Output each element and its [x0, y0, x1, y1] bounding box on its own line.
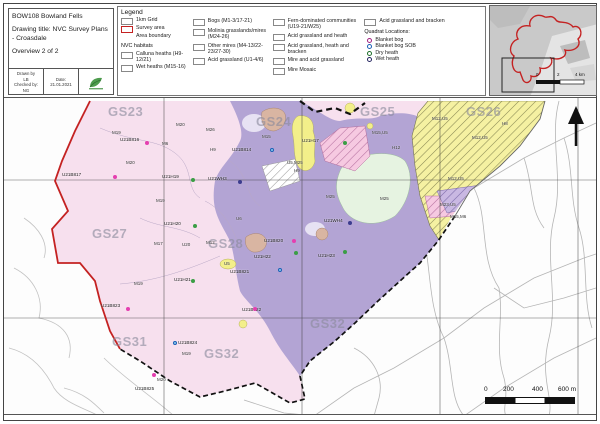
drawing-title: Drawing title: NVC Survey Plans - Croasd… [12, 26, 110, 43]
legend-item: Mire and acid grassland [273, 57, 365, 65]
legend-swatch [193, 29, 205, 36]
legend-swatch [364, 19, 376, 26]
nvc-code-label: U5 [224, 261, 230, 266]
quadrat-label: U21B820 [264, 238, 283, 243]
quadrat-marker: U21B825 [135, 377, 154, 395]
acid-grassland-heath-region [412, 101, 550, 246]
project-title: BOW108 Bowland Fells [12, 13, 110, 21]
grid-square-label: GS32 [204, 346, 239, 361]
legend-swatch [273, 19, 285, 26]
scalebar-label: 200 [503, 386, 514, 393]
nvc-code-label: M17 [154, 241, 163, 246]
nvc-code-label: M25 [326, 194, 335, 199]
quadrat-label: U21H19 [162, 174, 179, 179]
quadrat-dot-icon [238, 180, 242, 184]
nvc-code-label: M15,U5 [372, 130, 388, 135]
legend-swatch [193, 44, 205, 51]
north-arrow-icon [568, 106, 584, 146]
quadrat-marker: U21B816 [120, 128, 139, 146]
quadrat-label: U21B816 [120, 137, 139, 142]
quadrat-dot-icon [193, 224, 197, 228]
nvc-code-label: H12 [392, 145, 400, 150]
locator-map-graphic [490, 6, 597, 96]
scalebar-label: 0 [484, 386, 488, 393]
quadrat-label: U21H22 [254, 254, 271, 259]
nvc-code-label: M23,U5 [440, 202, 456, 207]
legend-title: Legend [121, 9, 482, 16]
quadrat-marker: U21B822 [242, 298, 261, 316]
quadrat-dot-icon [113, 175, 117, 179]
nvc-code-label: M12 [206, 240, 215, 245]
quadrat-dot-icon [270, 148, 274, 152]
quadrat-dot-icon [367, 57, 372, 62]
nvc-code-label: M20 [176, 122, 185, 127]
nvc-code-label: U5,M25 [287, 160, 303, 165]
quadrat-dot-icon [278, 268, 282, 272]
inset-scale-label: 4 km [575, 72, 585, 77]
legend-swatch [193, 19, 205, 26]
nvc-code-label: U6 [236, 216, 242, 221]
nvc-code-label: M20 [126, 160, 135, 165]
map-graphic [4, 98, 596, 415]
quadrat-dot-icon [294, 251, 298, 255]
quadrat-dot-icon [126, 307, 130, 311]
legend-swatch [121, 26, 133, 33]
main-map: GS23GS24GS25GS26GS27GS28GS31GS32GS32 M19… [4, 97, 596, 415]
scale-bar [485, 397, 575, 404]
legend-item: Acid grassland, heath and bracken [273, 43, 365, 56]
legend-item: Area boundary [121, 33, 193, 40]
quadrat-marker: U21H19 [162, 165, 179, 183]
legend-item: Wet heaths (M15-16) [121, 64, 193, 72]
quadrat-marker: U21B824 [178, 331, 197, 349]
nvc-code-label: M19 [182, 351, 191, 356]
inset-scale-label: 0 [536, 72, 539, 77]
grid-square-label: GS26 [466, 104, 501, 119]
quadrat-dot-icon [367, 51, 372, 56]
nvc-code-label: H8 [502, 121, 508, 126]
grid-square-label: GS25 [360, 104, 395, 119]
nvc-code-label: U20 [182, 242, 190, 247]
locator-inset-map: 024 km [489, 5, 597, 96]
quadrat-dot-icon [191, 178, 195, 182]
legend-item: Survey area [121, 25, 193, 33]
quadrat-label: U21B814 [232, 147, 251, 152]
nvc-code-label: M12,U5 [472, 135, 488, 140]
quadrat-label: U21B825 [135, 386, 154, 391]
nvc-code-label: M19 [134, 281, 143, 286]
legend-item: Fern-dominated communities (U19-21/W25) [273, 18, 365, 31]
quadrat-dot-icon [367, 44, 372, 49]
quadrat-label: U21H17 [302, 138, 319, 143]
date-cell: Date: 21.01.2021 [44, 69, 79, 94]
grid-square-label: GS24 [256, 114, 291, 129]
quadrat-label: U21WH3 [208, 176, 227, 181]
nvc-code-label: H9 [294, 168, 300, 173]
quadrat-dot-icon [145, 141, 149, 145]
nvc-code-label: M15 [262, 134, 271, 139]
inset-scale-label: 2 [557, 72, 560, 77]
legend-item: Acid grassland and bracken [364, 18, 482, 26]
drawn-by-cell: Drawn by LB Checked by: NG [9, 69, 44, 94]
legend-item: Calluna heaths (H9-12/21) [121, 51, 193, 64]
quadrat-label: U21WH4 [324, 218, 343, 223]
quadrat-label: U21B821 [230, 269, 249, 274]
legend: Legend 1km Grid Survey area Area boundar… [117, 6, 486, 96]
nvc-code-label: M12,U5 [432, 116, 448, 121]
legend-swatch [193, 58, 205, 65]
quadrat-marker: U21H20 [164, 212, 181, 230]
nvc-code-label: M26 [206, 127, 215, 132]
nvc-code-label: M12,U5 [448, 176, 464, 181]
quadrat-marker: U21H21 [174, 268, 191, 286]
legend-swatch [121, 18, 133, 25]
legend-item: 1km Grid [121, 17, 193, 25]
quadrat-label: U21H23 [318, 253, 335, 258]
quadrat-label: U21H21 [174, 277, 191, 282]
quadrat-dot-icon [348, 221, 352, 225]
legend-swatch [273, 34, 285, 41]
legend-item: Acid grassland (U1-4/6) [193, 57, 273, 65]
scalebar-label: 400 [532, 386, 543, 393]
nvc-code-label: M15,M6 [450, 214, 466, 219]
legend-item: Molinia grasslands/mires (M24-26) [193, 28, 273, 41]
legend-item: Mire Mosaic [273, 67, 365, 75]
quadrat-label: U21B823 [101, 303, 120, 308]
quadrat-marker: U21WH3 [208, 167, 227, 185]
quadrat-dot-icon [253, 307, 257, 311]
quadrat-label: U21B824 [178, 340, 197, 345]
grid-square-label: GS31 [112, 334, 147, 349]
quadrat-dot-icon [152, 373, 156, 377]
legend-swatch [273, 58, 285, 65]
legend-swatch [121, 65, 133, 72]
drawing-sheet: BOW108 Bowland Fells Drawing title: NVC … [0, 0, 600, 424]
quadrat-dot-icon [191, 279, 195, 283]
scalebar-label: 600 m [558, 386, 576, 393]
legend-swatch [121, 52, 133, 59]
quadrat-marker: U21B823 [101, 294, 120, 312]
grid-square-label: GS32 [310, 316, 345, 331]
quadrat-marker: U21H22 [254, 245, 271, 263]
quadrat-marker: U21H23 [318, 244, 335, 262]
legend-item: Other mires (M4-13/22-23/27-30) [193, 43, 273, 56]
quadrat-dot-icon [343, 141, 347, 145]
nvc-code-label: H9 [210, 147, 216, 152]
quadrat-label: U21B817 [62, 172, 81, 177]
quadrat-dot-icon [173, 341, 177, 345]
company-logo [79, 69, 113, 94]
leaf-logo-icon [86, 75, 106, 91]
title-block: BOW108 Bowland Fells Drawing title: NVC … [8, 8, 114, 95]
quadrat-legend-item: Wet heath [364, 56, 482, 62]
grid-square-label: GS27 [92, 226, 127, 241]
overview-label: Overview 2 of 2 [12, 48, 110, 56]
legend-swatch [273, 68, 285, 75]
nvc-habitats-header: NVC habitats [121, 43, 193, 49]
nvc-code-label: M6 [162, 141, 168, 146]
quadrat-locations-header: Quadrat Locations: [364, 29, 482, 35]
quadrat-dot-icon [292, 239, 296, 243]
nvc-code-label: M20 [157, 377, 166, 382]
quadrat-label: U21H20 [164, 221, 181, 226]
nvc-code-label: M25 [380, 196, 389, 201]
quadrat-marker: U21WH4 [324, 209, 343, 227]
quadrat-dot-icon [343, 250, 347, 254]
legend-item: Acid grassland and heath [273, 33, 365, 41]
quadrat-marker: U21B814 [232, 138, 251, 156]
quadrat-dot-icon [367, 38, 372, 43]
quadrat-marker: U21H17 [302, 129, 319, 147]
legend-item: Bogs (M1-3/17-21) [193, 18, 273, 26]
nvc-code-label: M19 [156, 198, 165, 203]
quadrat-marker: U21B821 [230, 260, 249, 278]
quadrat-label: U21B822 [242, 307, 261, 312]
grid-square-label: GS23 [108, 104, 143, 119]
legend-swatch [273, 44, 285, 51]
legend-swatch [121, 36, 133, 40]
quadrat-marker: U21B817 [62, 163, 81, 181]
